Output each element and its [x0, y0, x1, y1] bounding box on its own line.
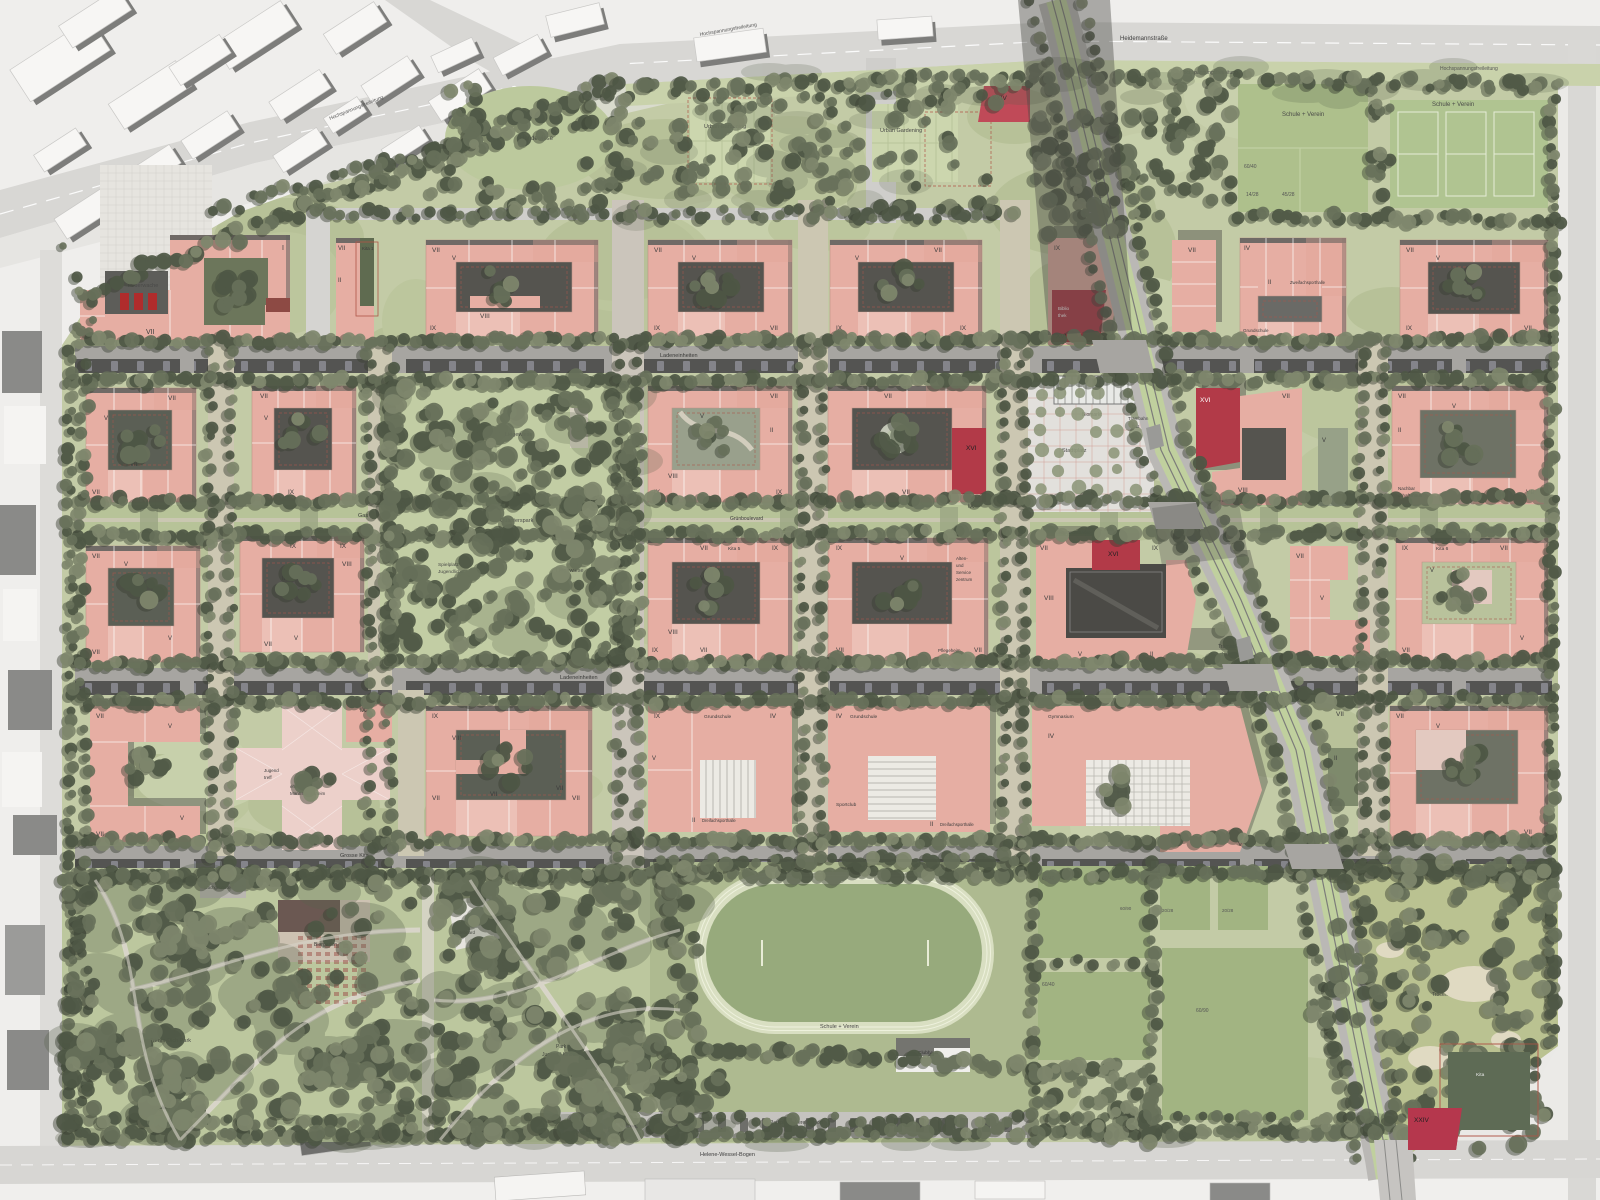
svg-text:Zweifachsporthalle: Zweifachsporthalle	[1290, 280, 1326, 285]
svg-text:VII: VII	[770, 325, 778, 332]
svg-text:IX: IX	[432, 713, 439, 720]
svg-text:VII: VII	[770, 393, 778, 400]
svg-text:XVI: XVI	[966, 445, 977, 452]
svg-text:VII: VII	[1282, 393, 1290, 400]
svg-text:VII: VII	[884, 393, 892, 400]
svg-text:Kita 1: Kita 1	[362, 246, 374, 251]
svg-text:V: V	[900, 556, 904, 562]
svg-text:V: V	[124, 562, 128, 568]
svg-text:IV: IV	[836, 713, 843, 720]
svg-text:V: V	[692, 256, 696, 262]
svg-text:IX: IX	[836, 545, 843, 552]
svg-text:20/28: 20/28	[1222, 908, 1234, 913]
svg-text:IX: IX	[1406, 325, 1413, 332]
svg-text:VII: VII	[92, 553, 100, 560]
svg-text:VII: VII	[92, 649, 100, 656]
svg-text:VII: VII	[1188, 247, 1196, 254]
svg-text:Ladeneinheiten: Ladeneinheiten	[660, 353, 698, 359]
svg-text:Kita 6: Kita 6	[1436, 546, 1449, 552]
svg-text:treff: treff	[264, 775, 272, 780]
svg-text:VII: VII	[1296, 553, 1304, 560]
svg-text:VII: VII	[264, 641, 272, 648]
svg-text:IX: IX	[654, 713, 661, 720]
svg-text:V: V	[180, 816, 184, 822]
svg-text:VII: VII	[1398, 393, 1406, 400]
svg-text:V: V	[1452, 404, 1456, 410]
svg-text:V: V	[104, 416, 108, 422]
svg-text:V: V	[294, 636, 298, 642]
svg-text:V: V	[1322, 438, 1326, 444]
svg-text:VII: VII	[654, 247, 662, 254]
svg-text:IX: IX	[1402, 545, 1409, 552]
svg-text:VIII: VIII	[668, 473, 678, 480]
svg-text:VII: VII	[1336, 711, 1344, 718]
svg-text:II: II	[692, 818, 696, 824]
svg-text:V: V	[452, 256, 456, 262]
svg-text:Grundschule: Grundschule	[1243, 328, 1269, 333]
svg-text:Ladeneinheiten: Ladeneinheiten	[560, 675, 598, 681]
svg-text:VIII: VIII	[480, 313, 490, 320]
svg-text:Heidemannstraße: Heidemannstraße	[1120, 36, 1168, 42]
svg-text:V: V	[1078, 652, 1082, 658]
svg-text:Service: Service	[956, 570, 972, 575]
svg-text:II: II	[1398, 428, 1402, 434]
svg-text:V: V	[652, 756, 656, 762]
svg-text:IX: IX	[654, 325, 661, 332]
svg-text:60/40: 60/40	[1244, 164, 1257, 170]
svg-text:Jugend: Jugend	[264, 768, 279, 773]
svg-text:Gymnasium: Gymnasium	[1048, 714, 1074, 720]
svg-text:VII: VII	[1396, 713, 1404, 720]
svg-text:IX: IX	[430, 325, 437, 332]
svg-text:VII: VII	[338, 246, 346, 252]
svg-text:VII: VII	[700, 545, 708, 552]
svg-text:XVI: XVI	[1200, 397, 1211, 404]
svg-text:Grundschule: Grundschule	[704, 714, 732, 720]
svg-text:20/28: 20/28	[1162, 908, 1174, 913]
svg-text:VII: VII	[490, 792, 498, 798]
svg-text:Alten-: Alten-	[956, 556, 968, 561]
svg-text:I: I	[282, 245, 284, 252]
svg-text:XVI: XVI	[1108, 551, 1119, 558]
svg-text:VII: VII	[432, 247, 440, 254]
svg-text:II: II	[338, 278, 342, 284]
svg-text:VII: VII	[556, 786, 564, 792]
svg-text:Dreifachsporthalle: Dreifachsporthalle	[702, 818, 736, 823]
svg-text:und: und	[956, 563, 964, 568]
svg-text:IX: IX	[772, 545, 779, 552]
svg-text:45/28: 45/28	[1282, 192, 1295, 198]
svg-text:VII: VII	[572, 795, 580, 802]
svg-text:VII: VII	[168, 395, 176, 402]
svg-text:Kita 5: Kita 5	[728, 546, 741, 552]
svg-text:IV: IV	[770, 713, 777, 720]
svg-text:IX: IX	[960, 325, 967, 332]
svg-text:Grundschule: Grundschule	[850, 714, 878, 720]
svg-text:Schule + Verein: Schule + Verein	[820, 1024, 859, 1030]
svg-text:VII: VII	[974, 647, 982, 654]
svg-text:VII: VII	[92, 489, 100, 496]
svg-text:VIII: VIII	[452, 736, 461, 742]
svg-text:VII: VII	[96, 713, 104, 720]
svg-text:V: V	[855, 256, 859, 262]
svg-text:Sportclub: Sportclub	[836, 802, 857, 808]
svg-text:VII: VII	[1402, 647, 1410, 654]
svg-text:II: II	[1268, 280, 1272, 286]
svg-text:VII: VII	[260, 393, 268, 400]
svg-text:60/90: 60/90	[1196, 1008, 1209, 1014]
svg-text:V: V	[1436, 256, 1440, 262]
svg-text:V: V	[1436, 724, 1440, 730]
svg-text:VII: VII	[700, 648, 708, 654]
svg-text:V: V	[700, 414, 704, 420]
svg-text:V: V	[1520, 636, 1524, 642]
svg-text:V: V	[168, 636, 172, 642]
svg-text:Grünboulevard: Grünboulevard	[730, 516, 763, 522]
svg-text:zentrum: zentrum	[956, 577, 973, 582]
svg-text:VIII: VIII	[668, 629, 678, 636]
svg-text:II: II	[770, 428, 774, 434]
svg-text:VII: VII	[1040, 545, 1048, 552]
svg-text:V: V	[168, 724, 172, 730]
svg-text:Nachbar: Nachbar	[1398, 486, 1416, 491]
svg-text:Helene-Wessel-Bogen: Helene-Wessel-Bogen	[700, 1152, 755, 1158]
svg-text:60/90: 60/90	[1120, 906, 1132, 911]
svg-text:14/28: 14/28	[1246, 192, 1259, 198]
svg-text:Urban Gardening: Urban Gardening	[880, 128, 922, 134]
svg-text:IX: IX	[652, 647, 659, 654]
svg-text:II: II	[1334, 756, 1338, 762]
svg-text:IV: IV	[1048, 733, 1055, 740]
svg-text:60/40: 60/40	[1042, 982, 1055, 988]
svg-text:Dreifachsporthalle: Dreifachsporthalle	[940, 822, 974, 827]
svg-text:Schule + Verein: Schule + Verein	[1282, 112, 1324, 118]
svg-text:V: V	[264, 416, 268, 422]
svg-text:Schule + Verein: Schule + Verein	[1432, 102, 1474, 108]
svg-text:VII: VII	[934, 247, 942, 254]
svg-text:IV: IV	[1244, 245, 1251, 252]
svg-text:VII: VII	[1406, 247, 1414, 254]
svg-text:IX: IX	[1152, 545, 1159, 552]
svg-text:V: V	[1430, 568, 1434, 574]
svg-text:VII: VII	[1500, 545, 1508, 552]
svg-text:V: V	[1320, 596, 1324, 602]
svg-text:VII: VII	[432, 795, 440, 802]
svg-text:VIII: VIII	[1044, 595, 1054, 602]
svg-text:VII: VII	[146, 329, 155, 336]
svg-text:II: II	[930, 822, 934, 828]
svg-text:VIII: VIII	[342, 561, 352, 568]
